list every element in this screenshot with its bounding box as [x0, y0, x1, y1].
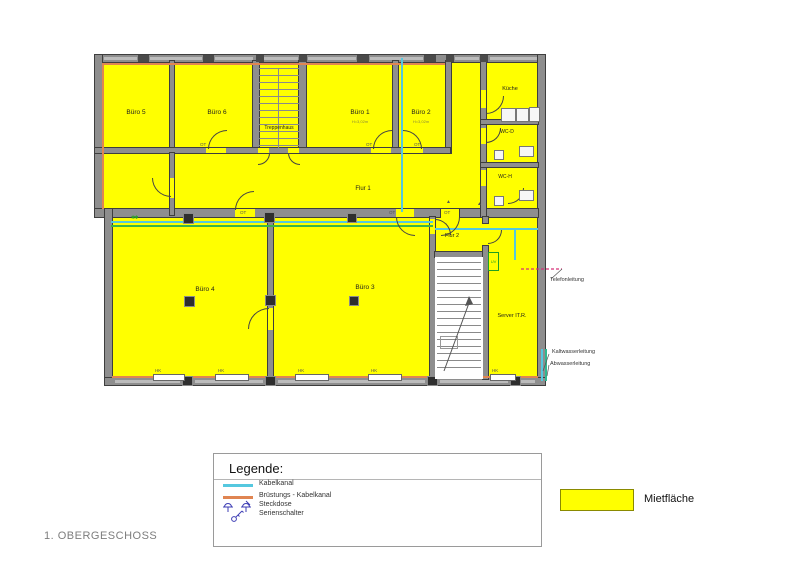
room-label-flur-1: Flur 1	[355, 186, 370, 192]
legend: Legende: Kabelkanal Brüstungs - Kabelkan…	[213, 453, 542, 547]
door-tag: OT	[366, 142, 372, 147]
room-label-buero-2: Büro 2	[411, 109, 430, 116]
room-note-buero-1: H=3,02m	[352, 119, 368, 124]
drain-triangle-icon: ▲	[446, 199, 451, 205]
annotation-telefonleitung: Telefonleitung	[550, 277, 584, 283]
uv-distribution-box: UV	[488, 252, 499, 271]
radiator-tag: HK	[155, 368, 161, 373]
series-switch-icon	[230, 510, 244, 523]
mietflaeche-swatch	[560, 489, 634, 511]
room-label-wc-h: WC-H	[498, 174, 512, 180]
room-label-server-it: Server IT.R.	[497, 313, 526, 319]
drain-triangle-icon: ▲	[477, 201, 482, 207]
room-note-buero-2: H=3,02m	[413, 119, 429, 124]
legend-item-serienschalter: Serienschalter	[259, 510, 304, 517]
radiator-tag: HK	[492, 368, 498, 373]
radiator-tag: HK	[298, 368, 304, 373]
annotation-abwasserleitung: Abwasserleitung	[550, 361, 590, 367]
door-tag: OT	[389, 210, 395, 215]
room-label-kueche: Küche	[502, 86, 518, 92]
legend-item-kabelkanal: Kabelkanal	[259, 480, 294, 487]
legend-item-bruestungs-kabelkanal: Brüstungs - Kabelkanal	[259, 492, 331, 499]
kabelkanal-line-icon	[223, 484, 253, 487]
room-label-buero-5: Büro 5	[126, 109, 145, 116]
room-label-buero-1: Büro 1	[350, 109, 369, 116]
legend-title: Legende:	[229, 461, 283, 476]
door-tag: OT	[200, 142, 206, 147]
mietflaeche-label: Mietfläche	[644, 493, 694, 505]
bruestungs-kabelkanal-line-icon	[223, 496, 253, 499]
room-label-buero-4: Büro 4	[195, 286, 214, 293]
radiator-tag: HK	[218, 368, 224, 373]
floor-plan-page: Büro 5 Büro 6 Treppenhaus Büro 1 H=3,02m…	[0, 0, 800, 565]
room-label-treppenhaus: Treppenhaus	[264, 125, 293, 131]
radiator-tag: HK	[371, 368, 377, 373]
annotation-kaltwasserleitung: Kaltwasserleitung	[552, 349, 595, 355]
room-label-buero-3: Büro 3	[355, 284, 374, 291]
door-tag: OT	[414, 142, 420, 147]
room-label-buero-6: Büro 6	[207, 109, 226, 116]
room-label-wc-d: WC-D	[500, 129, 514, 135]
room-label-flur-2: Flur 2	[445, 233, 459, 239]
legend-item-steckdose: Steckdose	[259, 501, 292, 508]
door-tag: OT	[444, 210, 450, 215]
page-title: 1. OBERGESCHOSS	[44, 530, 157, 542]
door-tag: OT	[240, 210, 246, 215]
socket-mark-icon: ✱✱	[131, 215, 137, 221]
